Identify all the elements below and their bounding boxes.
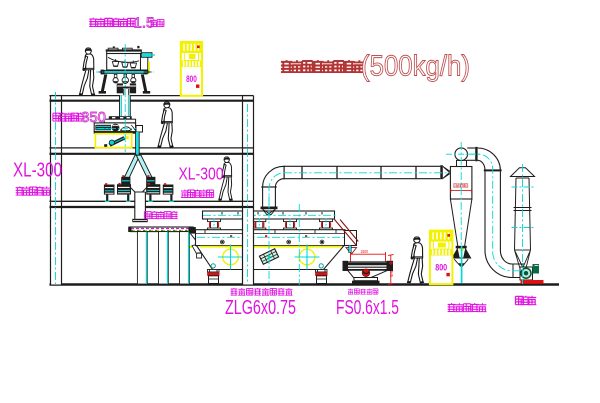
svg-text:XL-300: XL-300	[179, 164, 224, 184]
svg-text:(500kg/h): (500kg/h)	[361, 51, 470, 83]
svg-text:545: 545	[389, 271, 394, 278]
svg-text:800: 800	[186, 74, 197, 85]
svg-text:XL-300: XL-300	[13, 160, 62, 182]
svg-text:1500: 1500	[361, 249, 369, 254]
svg-text:350: 350	[81, 109, 106, 126]
svg-text:ZLG6x0.75: ZLG6x0.75	[225, 297, 296, 319]
svg-text:800: 800	[435, 262, 447, 273]
svg-text:FS0.6x1.5: FS0.6x1.5	[336, 297, 399, 319]
